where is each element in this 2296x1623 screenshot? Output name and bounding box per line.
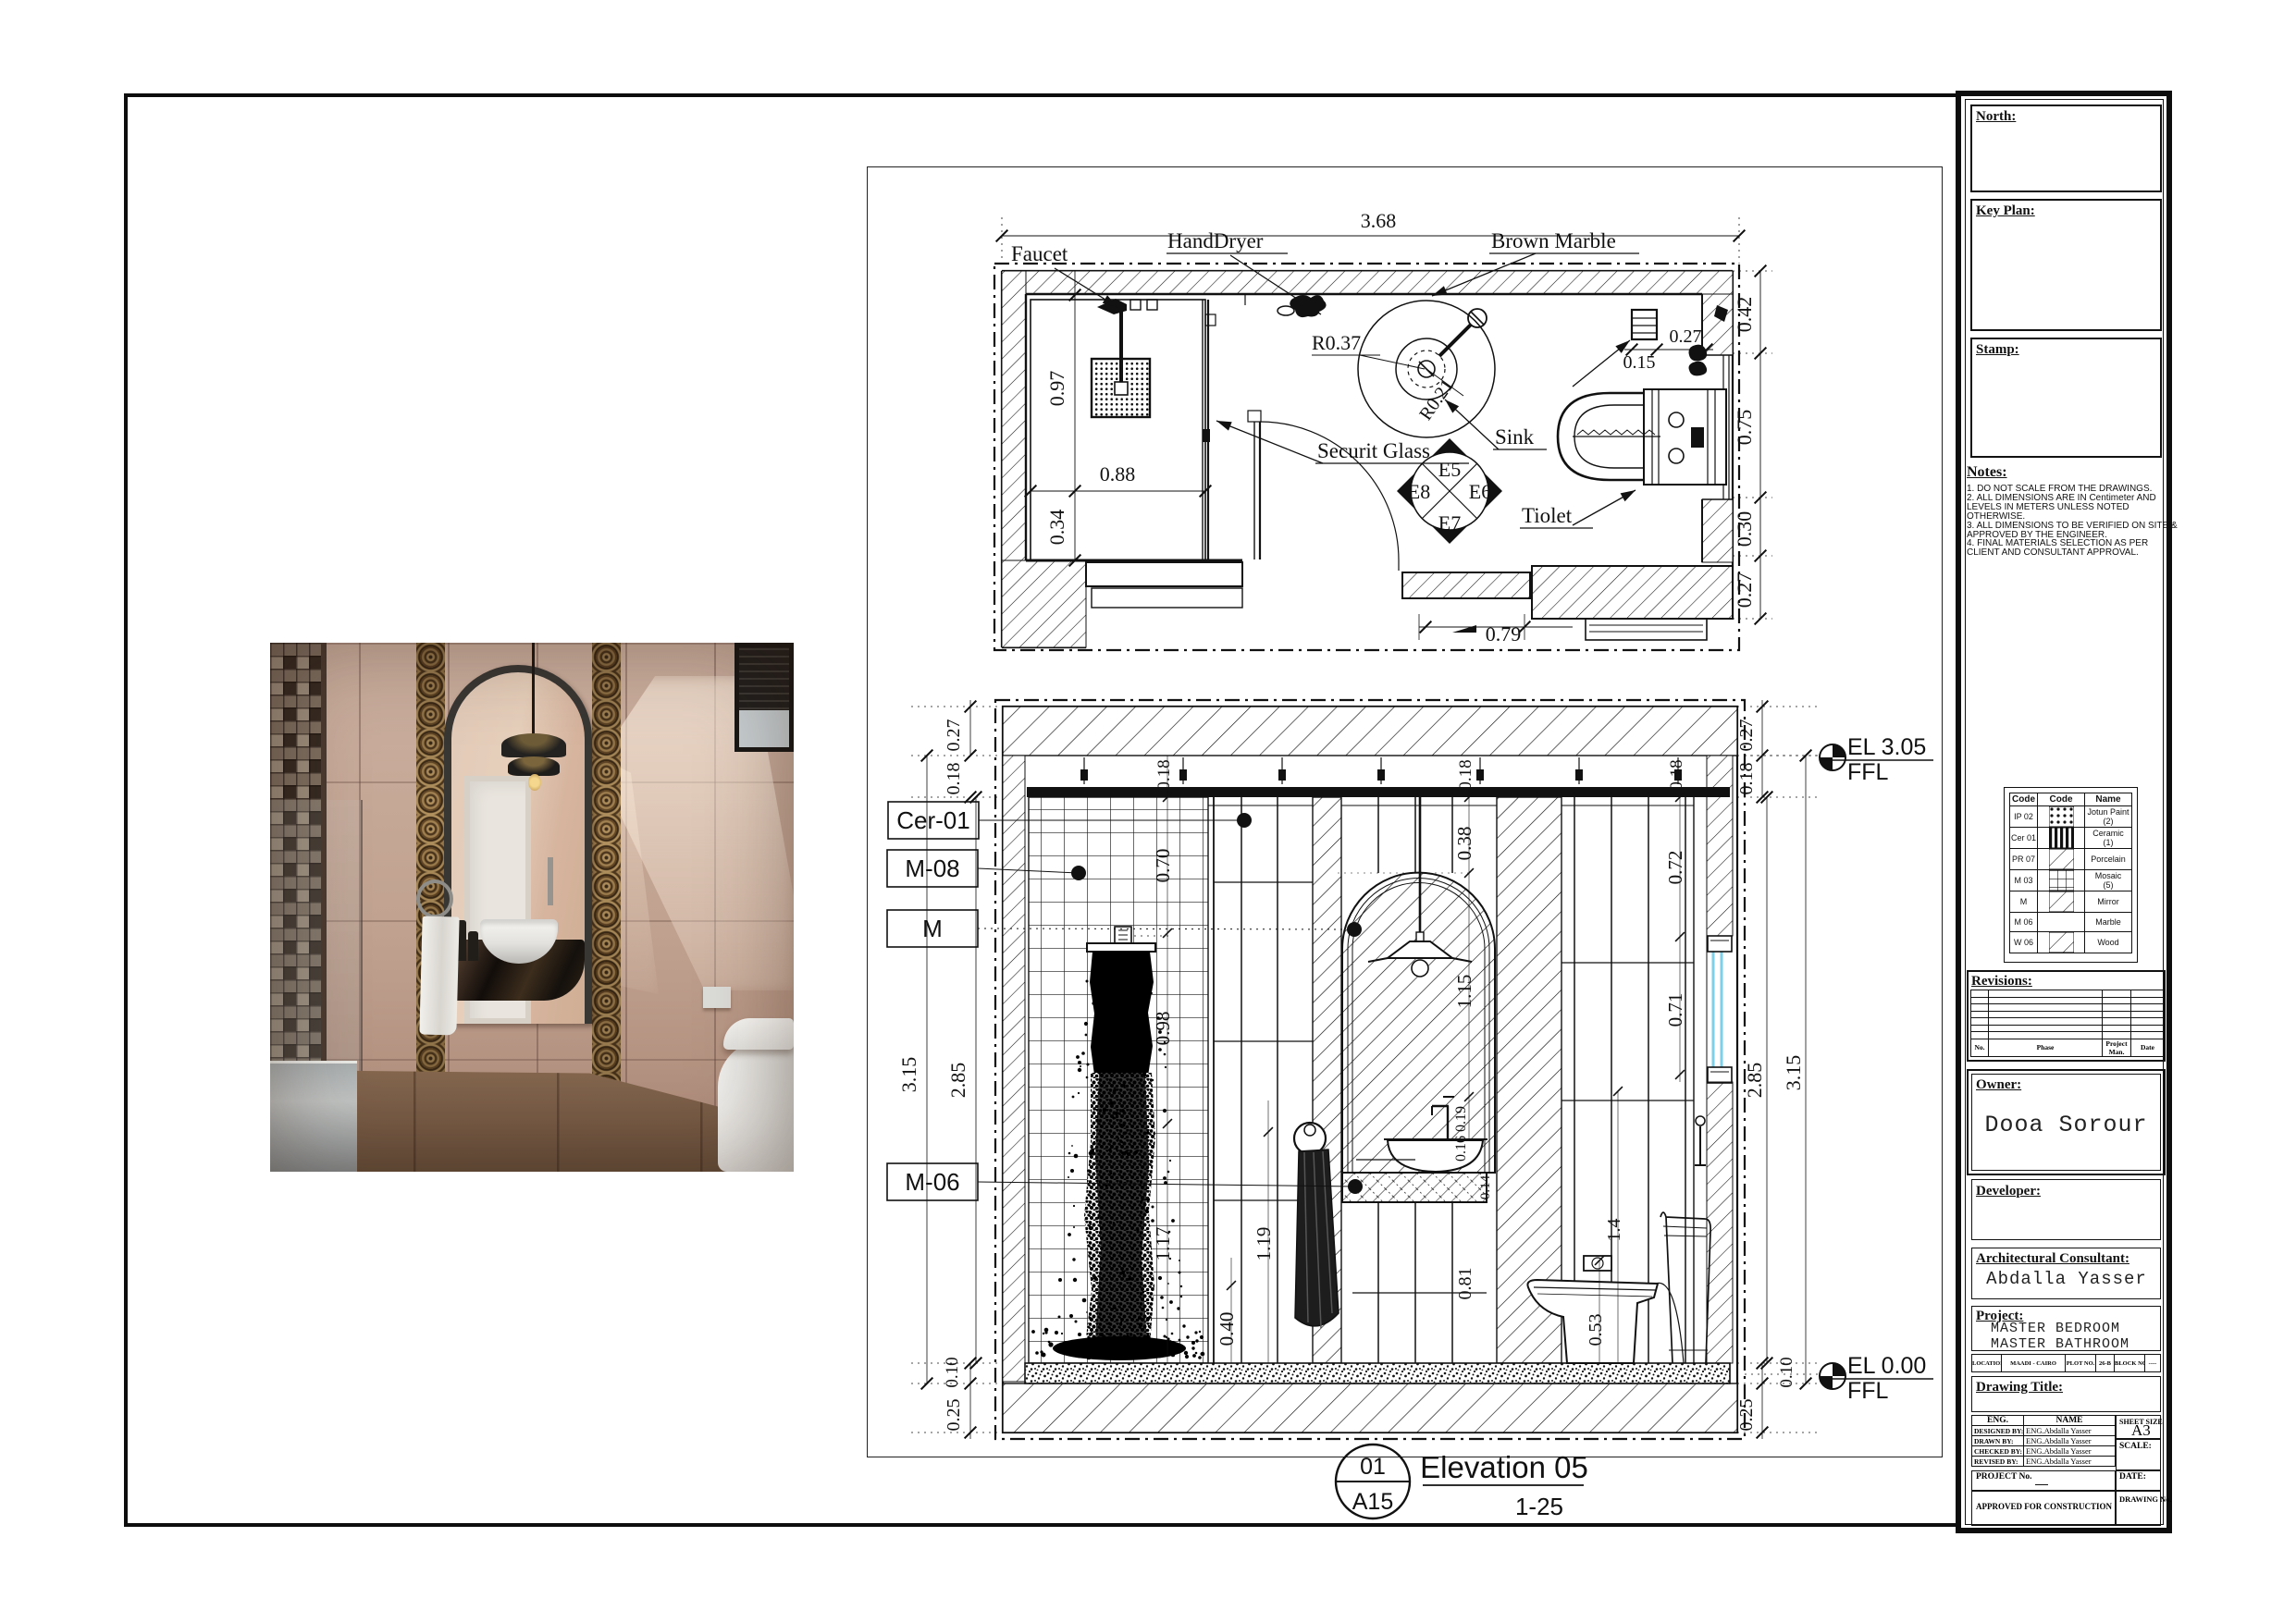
svg-text:Cer-01: Cer-01	[896, 806, 969, 834]
svg-text:M-06: M-06	[905, 1168, 959, 1196]
svg-text:FFL: FFL	[1847, 759, 1889, 785]
svg-text:3.68: 3.68	[1361, 209, 1397, 232]
svg-text:0.38: 0.38	[1453, 827, 1475, 861]
svg-text:01: 01	[1360, 1454, 1386, 1480]
svg-text:2.85: 2.85	[1743, 1063, 1766, 1099]
svg-text:3.15: 3.15	[897, 1057, 920, 1093]
svg-text:0.72: 0.72	[1664, 851, 1686, 885]
svg-text:E8: E8	[1408, 480, 1430, 503]
svg-text:R0.21: R0.21	[1415, 375, 1458, 424]
svg-text:0.27: 0.27	[1670, 326, 1702, 347]
svg-text:0.42: 0.42	[1733, 297, 1756, 333]
svg-text:0.81: 0.81	[1455, 1268, 1475, 1300]
svg-text:A15: A15	[1352, 1489, 1393, 1515]
svg-text:2.85: 2.85	[946, 1063, 969, 1099]
svg-text:0.25: 0.25	[1736, 1399, 1757, 1432]
svg-text:0.25: 0.25	[944, 1399, 964, 1432]
svg-text:Securit Glass: Securit Glass	[1317, 439, 1430, 462]
svg-text:Elevation 05: Elevation 05	[1420, 1450, 1588, 1484]
svg-text:3.15: 3.15	[1782, 1055, 1805, 1091]
svg-text:EL 3.05: EL 3.05	[1847, 734, 1926, 760]
svg-text:0.70: 0.70	[1152, 849, 1174, 883]
svg-text:0.75: 0.75	[1733, 410, 1756, 446]
svg-text:0.27: 0.27	[944, 719, 964, 752]
svg-text:0.79: 0.79	[1486, 622, 1522, 646]
svg-text:M: M	[922, 915, 943, 942]
svg-text:0.15: 0.15	[1623, 352, 1656, 373]
svg-text:E6: E6	[1469, 480, 1491, 503]
svg-text:0.10: 0.10	[943, 1357, 962, 1387]
svg-text:0.71: 0.71	[1664, 993, 1686, 1027]
svg-text:Tiolet: Tiolet	[1522, 504, 1573, 527]
svg-text:Sink: Sink	[1495, 425, 1535, 449]
svg-text:0.27: 0.27	[1736, 719, 1757, 752]
svg-text:0.27: 0.27	[1733, 572, 1756, 609]
svg-text:0.97: 0.97	[1045, 371, 1068, 407]
svg-text:1.15: 1.15	[1453, 975, 1475, 1009]
svg-text:0.18: 0.18	[1456, 759, 1475, 790]
svg-text:Faucet: Faucet	[1011, 242, 1068, 265]
svg-text:0.40: 0.40	[1216, 1312, 1238, 1346]
svg-text:1.17: 1.17	[1152, 1227, 1174, 1261]
svg-text:0.88: 0.88	[1100, 462, 1136, 486]
svg-text:1.19: 1.19	[1253, 1227, 1275, 1261]
svg-text:0.19: 0.19	[1453, 1106, 1469, 1132]
svg-text:0.18: 0.18	[1154, 759, 1174, 790]
svg-text:Brown Marble: Brown Marble	[1491, 229, 1616, 252]
svg-text:E5: E5	[1438, 458, 1461, 481]
svg-text:0.30: 0.30	[1733, 511, 1756, 547]
svg-text:0.53: 0.53	[1586, 1314, 1606, 1346]
svg-text:HandDryer: HandDryer	[1167, 229, 1264, 252]
svg-text:0.98: 0.98	[1152, 1012, 1174, 1046]
svg-text:0.14: 0.14	[1478, 1174, 1493, 1199]
svg-text:R0.37: R0.37	[1312, 331, 1361, 354]
svg-text:0.34: 0.34	[1045, 510, 1068, 546]
svg-text:0.16: 0.16	[1453, 1136, 1469, 1162]
svg-text:EL 0.00: EL 0.00	[1847, 1353, 1926, 1379]
svg-text:E7: E7	[1438, 511, 1461, 535]
svg-text:0.18: 0.18	[944, 763, 964, 795]
svg-text:0.18: 0.18	[1736, 763, 1757, 795]
svg-text:1-25: 1-25	[1515, 1493, 1563, 1520]
svg-text:0.18: 0.18	[1667, 759, 1686, 790]
svg-text:0.10: 0.10	[1777, 1357, 1796, 1387]
svg-text:FFL: FFL	[1847, 1378, 1889, 1404]
svg-text:1.4: 1.4	[1604, 1219, 1624, 1242]
svg-text:M-08: M-08	[905, 855, 959, 882]
